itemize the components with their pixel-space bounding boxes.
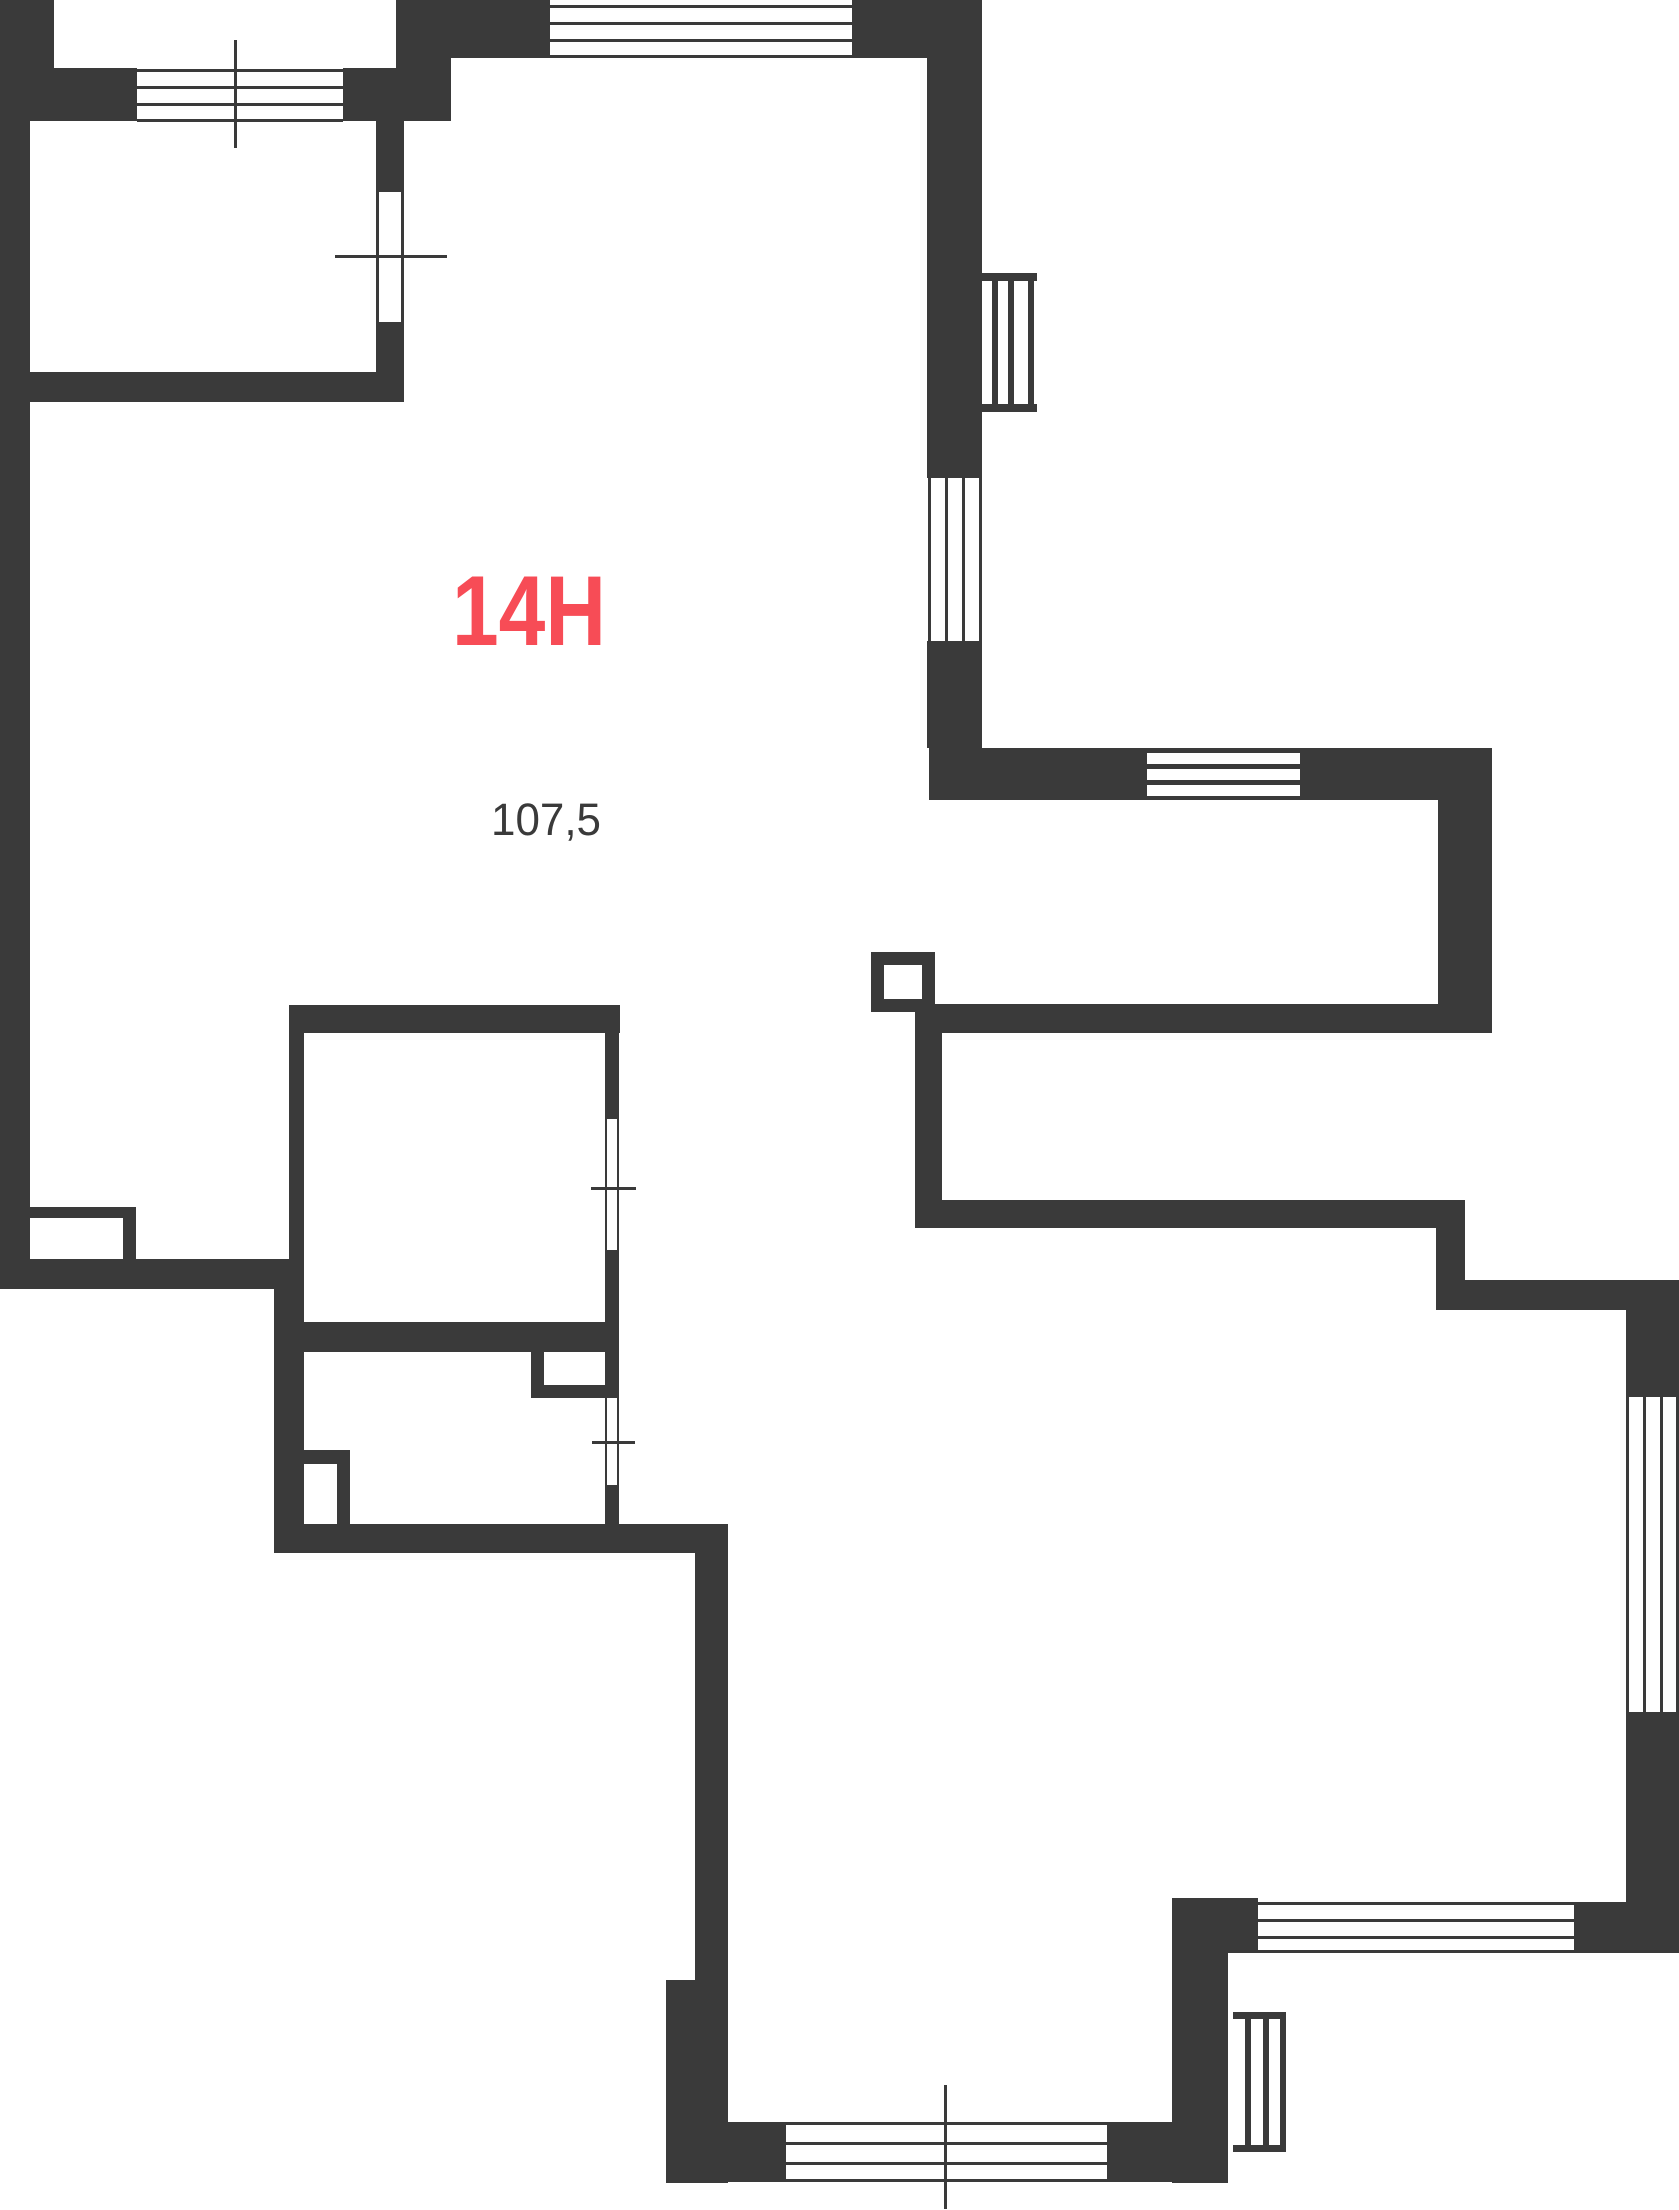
svg-text:14H: 14H bbox=[452, 555, 606, 666]
svg-text:107,5: 107,5 bbox=[491, 794, 601, 845]
